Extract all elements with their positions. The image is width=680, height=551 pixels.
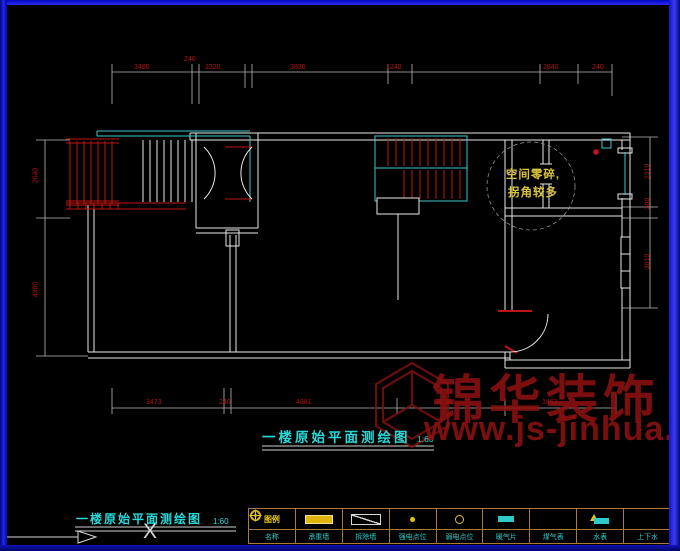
drain-icon	[249, 509, 262, 522]
legend-cell-drain: 上下水	[624, 509, 671, 543]
legend-label: 上下水	[624, 530, 671, 543]
floor-plan-canvas	[0, 0, 680, 551]
dimension-label: 3460	[134, 64, 150, 71]
dimension-label: 240	[219, 399, 231, 406]
frame-border-right	[669, 0, 680, 551]
water-meter-icon	[590, 514, 610, 524]
dimension-label: 2840	[543, 64, 559, 71]
stairs-red-hatch	[66, 139, 186, 209]
dimension-label: 1462	[542, 399, 558, 406]
dimension-label: 3473	[146, 399, 162, 406]
dimension-label: 2310	[644, 164, 651, 180]
ucs-x-label: X	[143, 520, 157, 544]
ucs-axis-icon	[2, 531, 96, 543]
legend-label: 承重墙	[296, 530, 342, 543]
frame-border-bottom	[0, 545, 680, 551]
legend-label: 水表	[577, 530, 623, 543]
stairs-white	[143, 140, 192, 202]
radiator-icon	[498, 516, 514, 522]
legend-table: 图例 名称 承重墙 拆除墙 强电点位 弱电点位 暖气片	[248, 508, 672, 544]
removed-wall-icon	[351, 514, 381, 525]
entry-door	[204, 147, 252, 199]
frame-border-top	[0, 0, 680, 5]
drawing-scale-secondary: 1:60	[213, 517, 229, 526]
weak-point-icon	[455, 515, 464, 524]
cad-drawing-viewport: 3460 240 1520 3836 1240 2840 240 3473 24…	[0, 0, 680, 551]
revision-note: 空间零碎, 拐角较多	[494, 167, 572, 203]
drawing-title: 一楼原始平面测绘图	[262, 426, 411, 446]
dimension-label: 240	[184, 56, 196, 63]
legend-cell-removed-wall: 拆除墙	[343, 509, 390, 543]
legend-cell-power: 强电点位	[390, 509, 437, 543]
frame-border-left	[0, 0, 7, 551]
dimension-label: 3154	[436, 399, 452, 406]
dimension-label: 1240	[386, 64, 402, 71]
revision-note-line2: 拐角较多	[508, 187, 558, 199]
legend-label: 拆除墙	[343, 530, 389, 543]
dimension-label: 240	[592, 64, 604, 71]
dimension-label: 3010	[644, 254, 651, 270]
legend-label: 强电点位	[390, 530, 436, 543]
legend-label: 名称	[249, 530, 295, 543]
power-point-icon	[410, 517, 415, 522]
legend-cell-radiator: 暖气片	[483, 509, 530, 543]
solid-wall-icon	[305, 515, 333, 524]
swing-door	[498, 311, 548, 353]
legend-header: 图例	[264, 514, 280, 525]
revision-note-line1: 空间零碎,	[506, 169, 560, 181]
legend-cell-wall: 承重墙	[296, 509, 343, 543]
legend-cell-water-meter: 水表	[577, 509, 624, 543]
legend-cell-weak: 弱电点位	[437, 509, 484, 543]
dimension-label: 2040	[32, 168, 39, 184]
drawing-scale: 1:60	[417, 434, 434, 444]
stairs-center	[375, 136, 467, 300]
dimension-label: 4881	[296, 399, 312, 406]
dimension-label: 1520	[205, 64, 221, 71]
dimension-label: 3836	[290, 64, 306, 71]
dimension-lines	[36, 64, 658, 416]
drawing-title-secondary: 一楼原始平面测绘图	[76, 510, 202, 527]
legend-label: 暖气片	[483, 530, 529, 543]
dimension-label: 4380	[32, 282, 39, 298]
red-point-marker	[593, 149, 599, 155]
dimension-label: 300	[644, 198, 651, 210]
legend-label: 弱电点位	[437, 530, 483, 543]
legend-label: 煤气表	[530, 530, 576, 543]
legend-cell-gas: 煤气表	[530, 509, 577, 543]
